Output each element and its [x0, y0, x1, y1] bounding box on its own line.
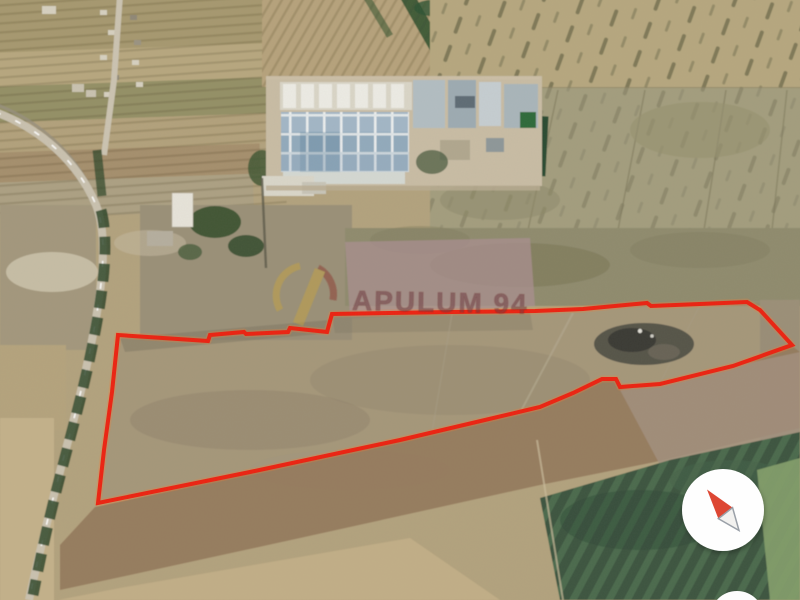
fields-northwest — [0, 0, 287, 221]
watermark-text: APULUM 94 — [352, 285, 529, 320]
excavation-site — [594, 323, 694, 365]
compass-button[interactable] — [682, 469, 764, 551]
map-viewport: APULUM 94 — [0, 0, 800, 600]
satellite-map-canvas[interactable]: APULUM 94 — [0, 0, 800, 600]
fields-north — [262, 0, 455, 87]
